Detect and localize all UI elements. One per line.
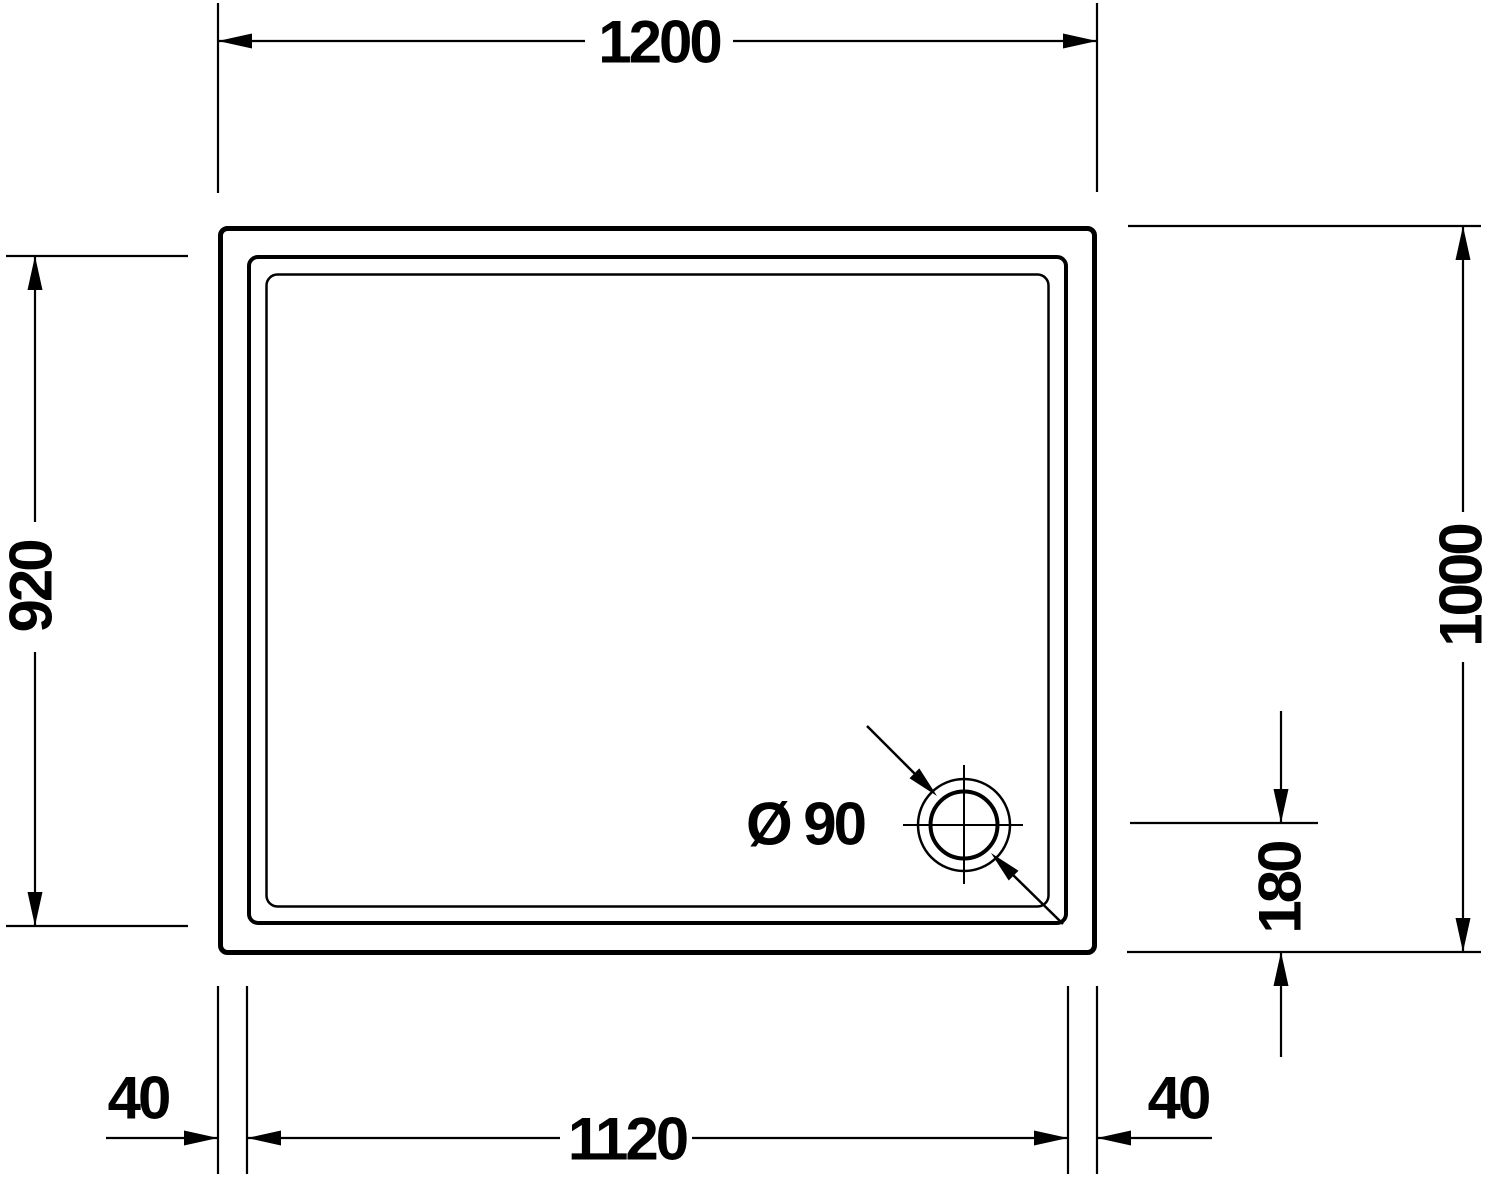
dim-1200-arrowhead-left xyxy=(218,34,252,49)
dim-920-arrowhead-top xyxy=(28,256,43,290)
dim-overall-width: 1200 xyxy=(218,3,1097,193)
dim-1000-arrowhead-top xyxy=(1456,226,1471,260)
dim-40-right-label: 40 xyxy=(1148,1065,1209,1132)
drawing-canvas: Ø 90 1200 920 xyxy=(0,0,1500,1184)
drain-leader-line-lower xyxy=(1009,871,1063,924)
dim-1200-label: 1200 xyxy=(598,9,720,76)
dim-left-wall: 40 xyxy=(106,1065,218,1146)
dim-180-arrowhead-bottom xyxy=(1274,952,1289,986)
drain-leader-line-upper xyxy=(867,726,922,781)
dim-1120-arrowhead-left xyxy=(247,1131,281,1146)
drawing-page: Ø 90 1200 920 xyxy=(0,0,1500,1184)
dim-40-left-label: 40 xyxy=(108,1065,169,1132)
dim-1120-label: 1120 xyxy=(568,1106,687,1173)
dim-40-right-arrowhead xyxy=(1097,1131,1131,1146)
dim-180-label: 180 xyxy=(1247,842,1314,934)
dim-920-arrowhead-bottom xyxy=(28,892,43,926)
tray-rim-inner-edge xyxy=(249,257,1066,923)
dim-inner-depth: 920 xyxy=(0,256,188,926)
dim-right-wall: 40 xyxy=(1097,1065,1212,1146)
dim-1120-arrowhead-right xyxy=(1034,1131,1068,1146)
dim-1200-arrowhead-right xyxy=(1063,34,1097,49)
drain: Ø 90 xyxy=(746,726,1063,924)
dim-180-arrowhead-top xyxy=(1274,789,1289,823)
dim-1000-arrowhead-bottom xyxy=(1456,918,1471,952)
dim-inner-width: 1120 xyxy=(247,1106,1068,1173)
dim-40-left-arrowhead xyxy=(184,1131,218,1146)
dim-drain-offset: 180 xyxy=(1130,711,1318,1057)
drain-diameter-label: Ø 90 xyxy=(746,791,865,858)
dim-1000-label: 1000 xyxy=(1428,525,1495,647)
dim-920-label: 920 xyxy=(0,541,65,633)
